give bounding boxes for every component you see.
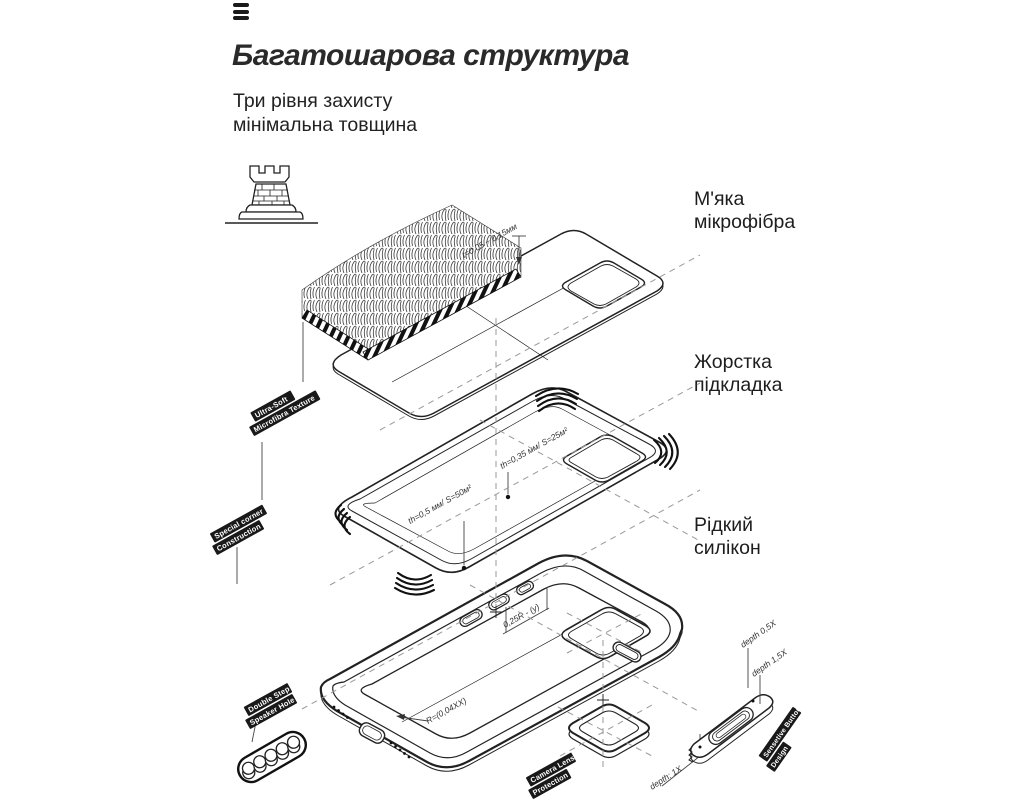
annotation-button-depth-a: depth 0,5X (738, 618, 778, 650)
tag-double-step: Double Step Speaker Hole (239, 683, 298, 729)
speaker-holes-detail (233, 727, 310, 787)
corner-ribs-bottom (395, 573, 434, 595)
plate-button (706, 705, 756, 747)
annotation-camera-depth: depth: 1X (648, 734, 700, 792)
tag-camera-lens: Camera Lens Protection (522, 752, 582, 799)
tag-ultra-soft: Ultra-Soft Microfibra Texture (243, 380, 320, 437)
exploded-diagram: t=0,05 ÷ 0,15мм (0, 0, 1024, 800)
tag-sensetive-button: Sensetive Button Design (756, 704, 813, 772)
layer-hard-lining (336, 388, 678, 595)
tag-special-corner: Special corner Construction (206, 504, 273, 555)
infographic-page: Багатошарова структура Три рівня захисту… (0, 0, 1024, 800)
camera-lens-protector (569, 705, 649, 758)
castle-tower-icon (225, 166, 318, 223)
annotation-button-depth-b: depth 1,5X (749, 647, 789, 679)
svg-text:depth: 1X: depth: 1X (648, 763, 684, 791)
